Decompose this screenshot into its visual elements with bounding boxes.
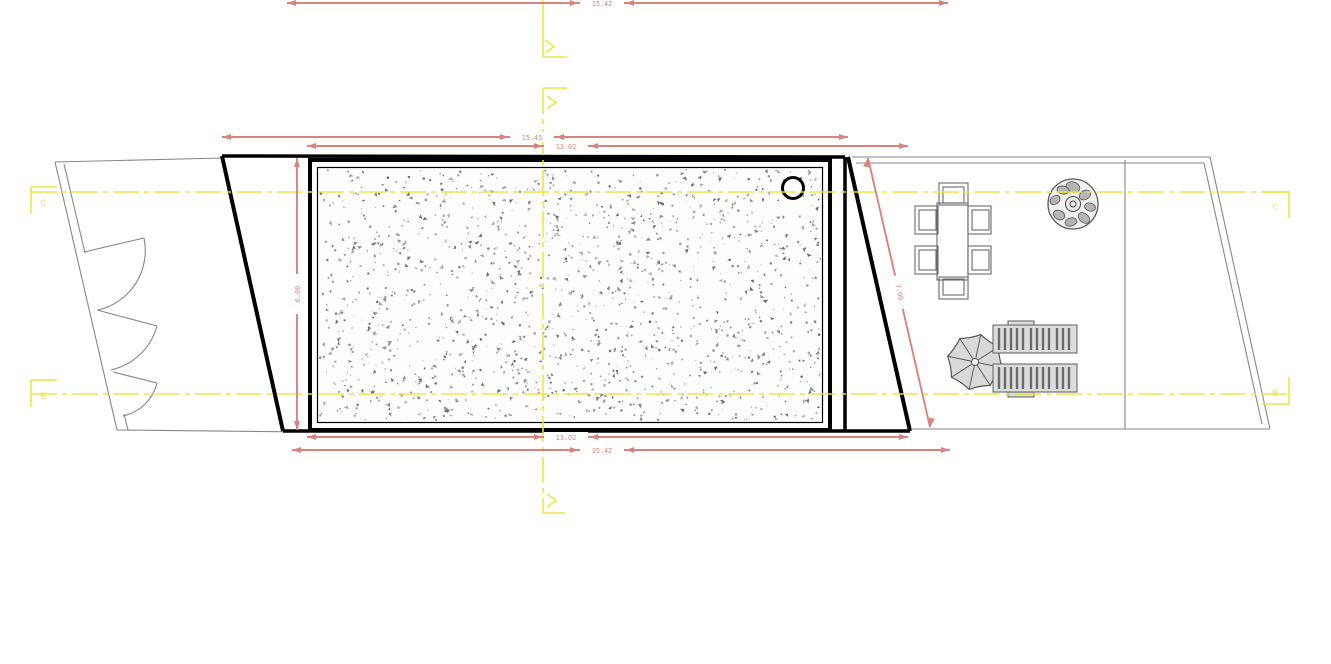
dimension-left-vertical: 6.00 (293, 158, 303, 430)
tree-plan-icon (1048, 179, 1098, 229)
concrete-slab (310, 160, 830, 430)
chair-icon (915, 206, 938, 234)
chair-icon (915, 246, 938, 274)
sun-lounger-icon (993, 364, 1077, 397)
dimension-label: 15.42 (592, 447, 612, 455)
grid-bubble-right-top: C (1262, 192, 1289, 218)
terrace-left-inner-wall (64, 164, 85, 253)
match-line-arrow-icon (547, 96, 556, 109)
dimension-top-outer: 15.42 (287, 0, 948, 8)
dimension-label: 15.42 (592, 0, 612, 8)
patio-right-outer-edge (1210, 157, 1270, 429)
terrace-top-edge (55, 158, 222, 162)
terrace-left-inner-wall (124, 414, 128, 430)
match-line-arrow-icon (547, 494, 556, 507)
dining-table-icon (937, 203, 968, 280)
chair-icon (939, 183, 968, 205)
dining-set (915, 183, 991, 299)
left-terrace (55, 158, 310, 432)
dimension-label: 6.00 (294, 286, 302, 302)
grid-label: C (1272, 203, 1277, 213)
door-swing (84, 238, 145, 310)
grid-label: B (40, 392, 45, 402)
cad-canvas: C B C B 15.42 15.45 (0, 0, 1331, 664)
circle-fixture-icon (783, 178, 804, 199)
dimension-label: 13.02 (556, 143, 576, 151)
grid-bubble-left-top: C (31, 187, 57, 214)
patio-right-inner-edge (1204, 163, 1262, 424)
chair-icon (968, 246, 991, 274)
site-plan-drawing: C B C B 15.42 15.45 (0, 0, 1331, 664)
grid-label: C (40, 199, 45, 209)
dimension-bottom-row1: 13.02 (307, 432, 908, 442)
dimension-label: 15.45 (522, 134, 542, 142)
terrace-left-outer-wall (55, 162, 117, 430)
match-line-arrow-icon (545, 40, 554, 53)
dimension-top-row1: 15.45 (222, 132, 848, 142)
dimension-label: 13.02 (556, 434, 576, 442)
grid-bubble-right-bottom: B (1262, 377, 1289, 404)
dimension-bottom-row2: 15.42 (292, 445, 950, 455)
dimension-top-row2: 13.02 (307, 141, 908, 151)
sun-lounger-icon (993, 321, 1077, 353)
structure-left-slanted-wall (222, 156, 283, 431)
door-swing (97, 310, 157, 370)
grid-label: B (1272, 389, 1277, 399)
chair-icon (968, 206, 991, 234)
structure-top-wall (222, 156, 845, 157)
